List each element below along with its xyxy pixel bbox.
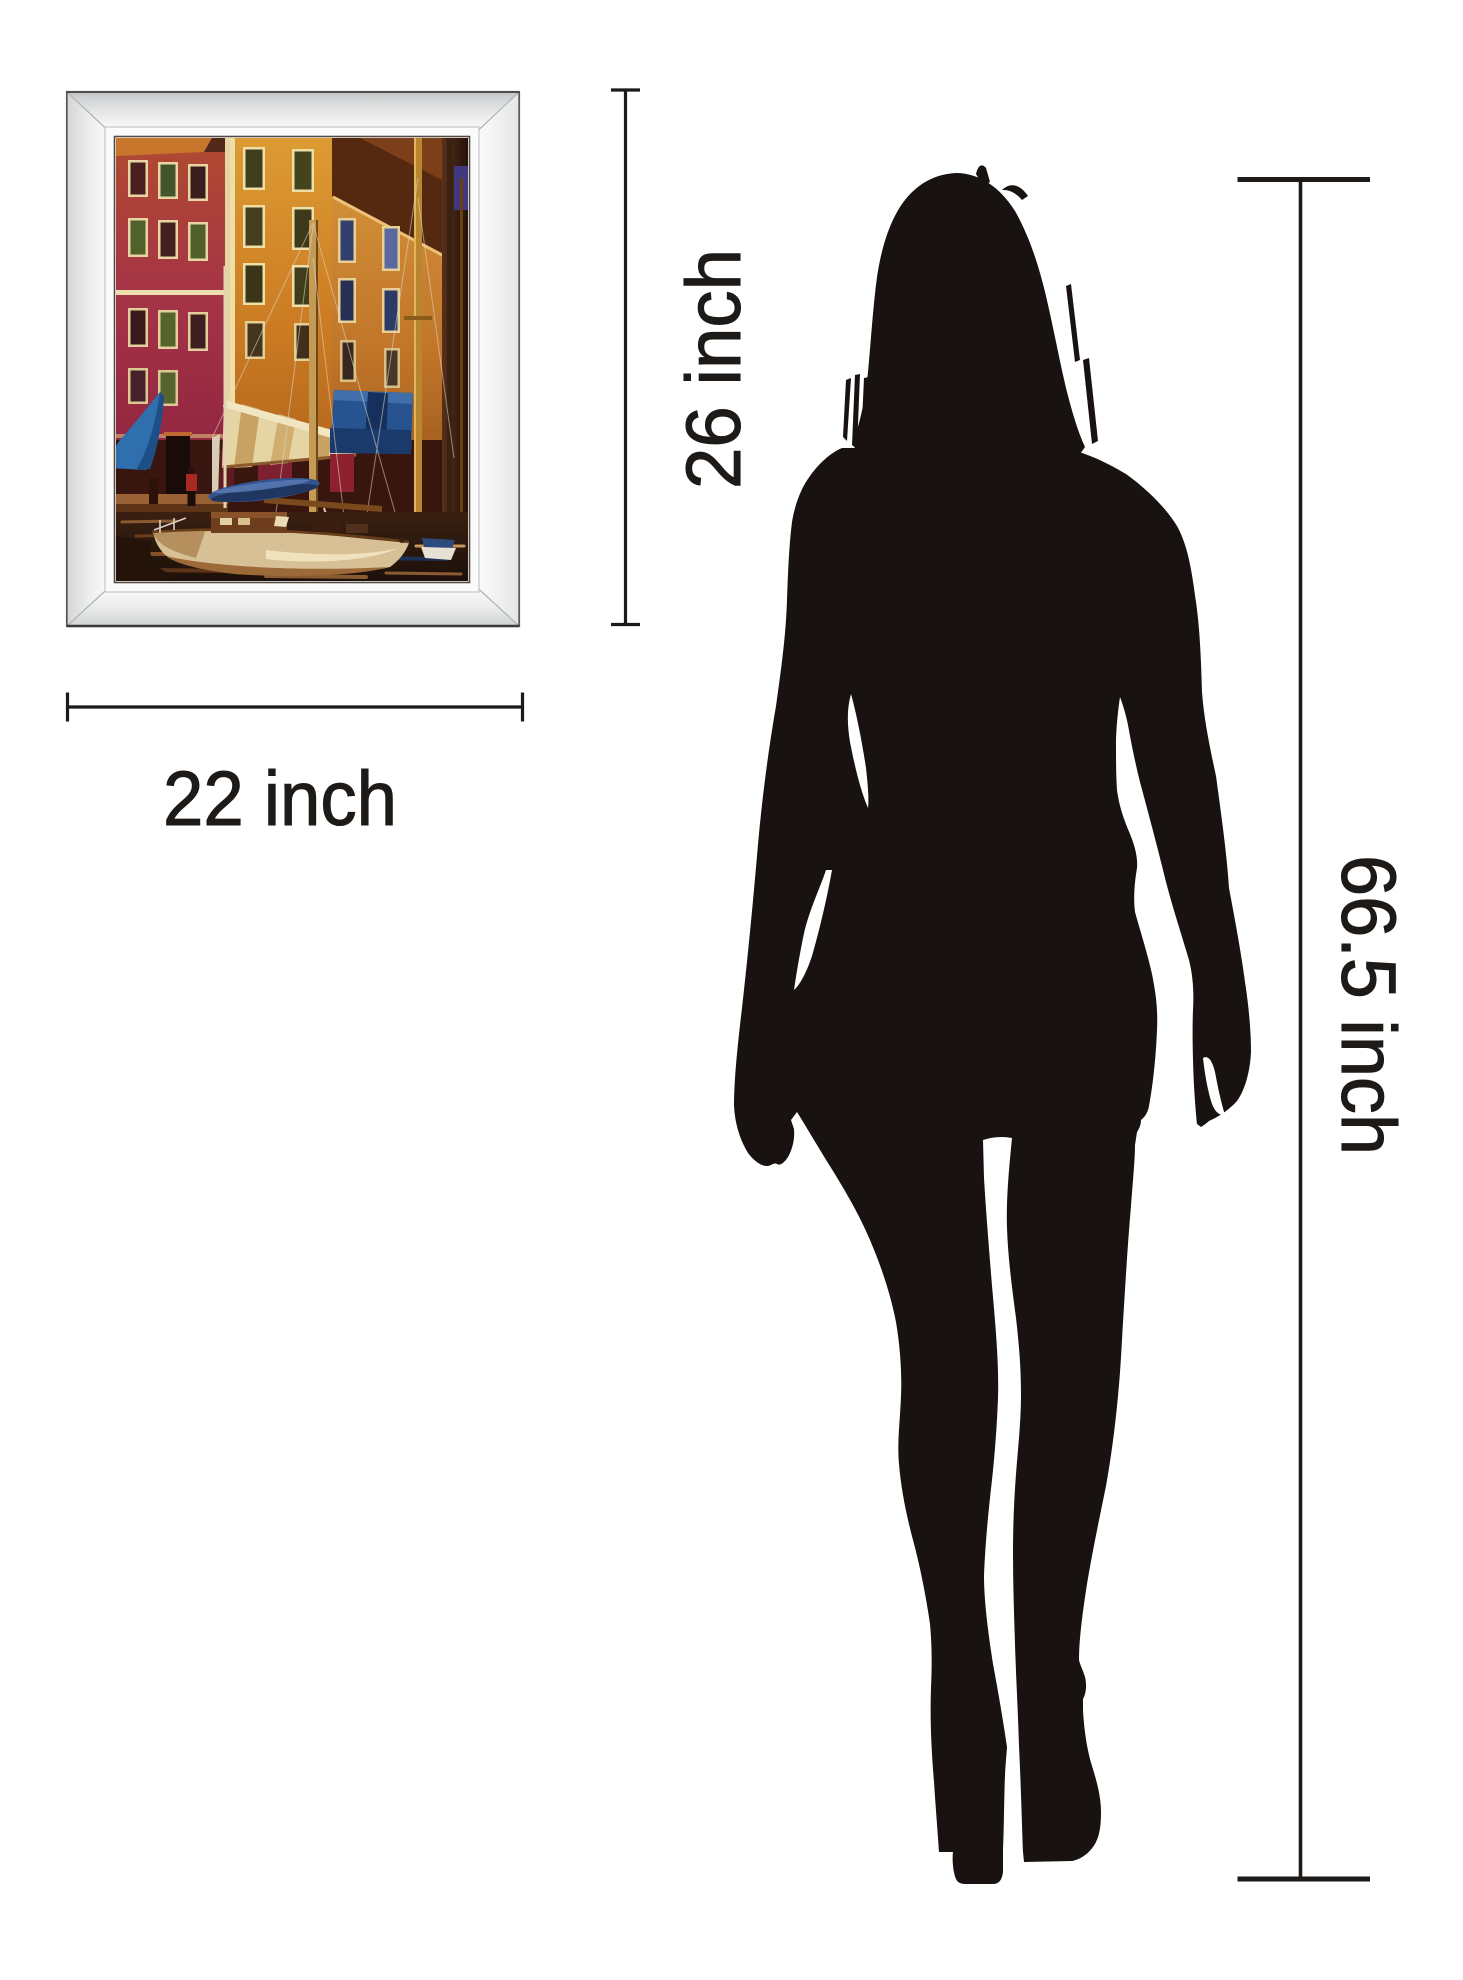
svg-text:26 inch: 26 inch: [671, 249, 757, 489]
svg-text:22 inch: 22 inch: [163, 756, 397, 842]
svg-text:66.5 inch: 66.5 inch: [1325, 855, 1411, 1155]
